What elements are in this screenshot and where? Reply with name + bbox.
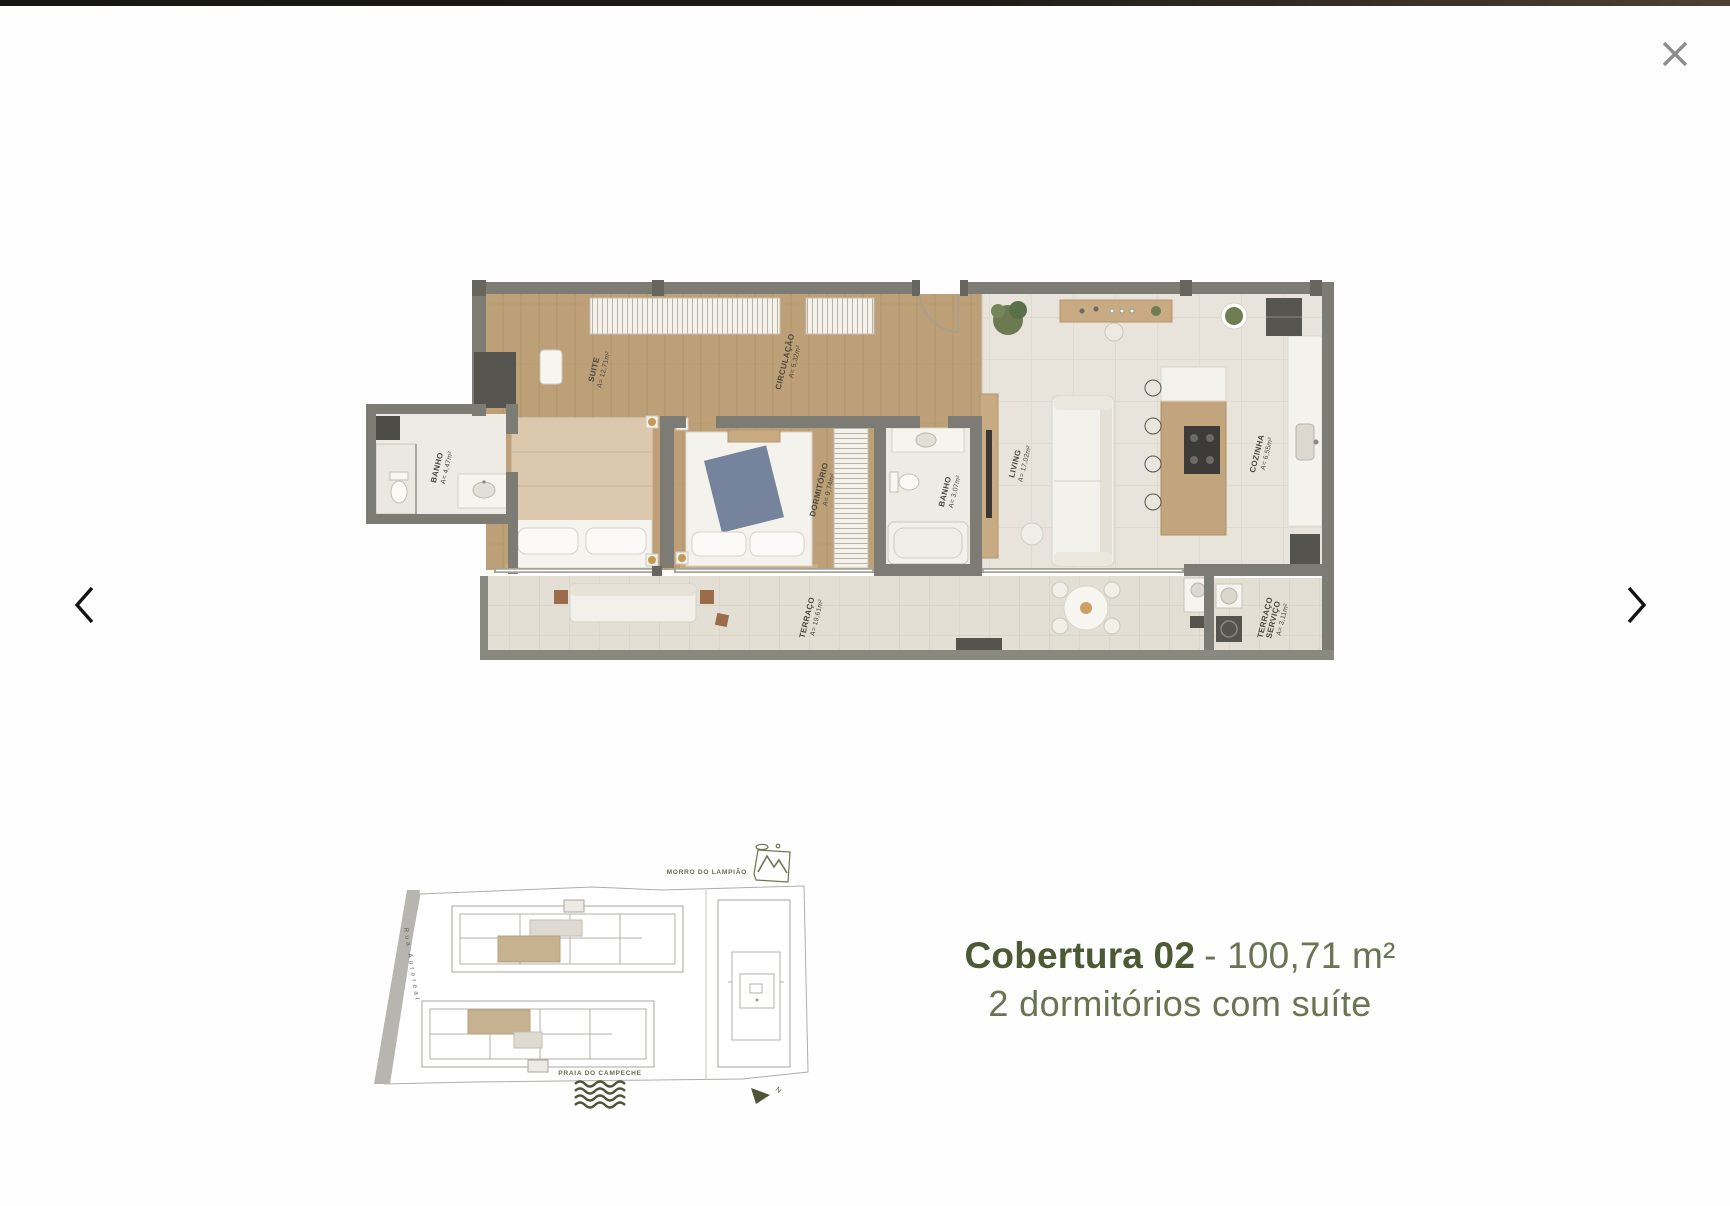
kitchen-island	[1161, 367, 1226, 535]
beach-label: PRAIA DO CAMPECHE	[558, 1070, 641, 1077]
highlighted-unit-b	[468, 1010, 530, 1034]
page-top-edge	[0, 0, 1730, 6]
close-icon	[1660, 39, 1690, 69]
compass-letter: N	[774, 1086, 782, 1095]
suite-dresser	[540, 350, 562, 384]
site-map: MORRO DO LAMPIÃO Rua Auroreal PRAIA DO C…	[352, 832, 822, 1122]
mountain-icon	[754, 844, 790, 882]
floor-plan-image: SUITE A= 12,71m² CIRCULAÇÃO A= 5,32m² DO…	[360, 276, 1340, 676]
facility-building	[718, 900, 790, 1067]
close-button[interactable]	[1648, 27, 1702, 81]
chevron-left-icon	[72, 585, 96, 625]
tv-panel	[980, 394, 998, 558]
building-a	[452, 900, 683, 972]
lightbox-overlay: SUITE A= 12,71m² CIRCULAÇÃO A= 5,32m² DO…	[0, 0, 1730, 1206]
next-button[interactable]	[1610, 578, 1664, 632]
unit-title-bold: Cobertura 02	[964, 935, 1195, 976]
suite-bed	[506, 418, 658, 573]
unit-caption: Cobertura 02- 100,71 m² 2 dormitórios co…	[930, 934, 1430, 1025]
chevron-right-icon	[1625, 585, 1649, 625]
dorm-wardrobe	[834, 426, 868, 568]
unit-subtitle: 2 dormitórios com suíte	[930, 983, 1430, 1025]
floor-plan-svg: SUITE A= 12,71m² CIRCULAÇÃO A= 5,32m² DO…	[360, 276, 1340, 676]
hill-label: MORRO DO LAMPIÃO	[667, 867, 747, 876]
unit-title: Cobertura 02- 100,71 m²	[930, 934, 1430, 978]
building-b	[422, 1001, 654, 1072]
dorm-desk	[728, 430, 780, 442]
suite-closet	[590, 298, 874, 334]
highlighted-unit-a	[498, 936, 560, 962]
site-map-svg: MORRO DO LAMPIÃO Rua Auroreal PRAIA DO C…	[352, 832, 822, 1122]
prev-button[interactable]	[57, 578, 111, 632]
waves-icon	[575, 1082, 625, 1108]
compass-icon: N	[751, 1086, 782, 1104]
dorm-bed	[680, 432, 818, 573]
unit-title-area: - 100,71 m²	[1204, 935, 1395, 976]
